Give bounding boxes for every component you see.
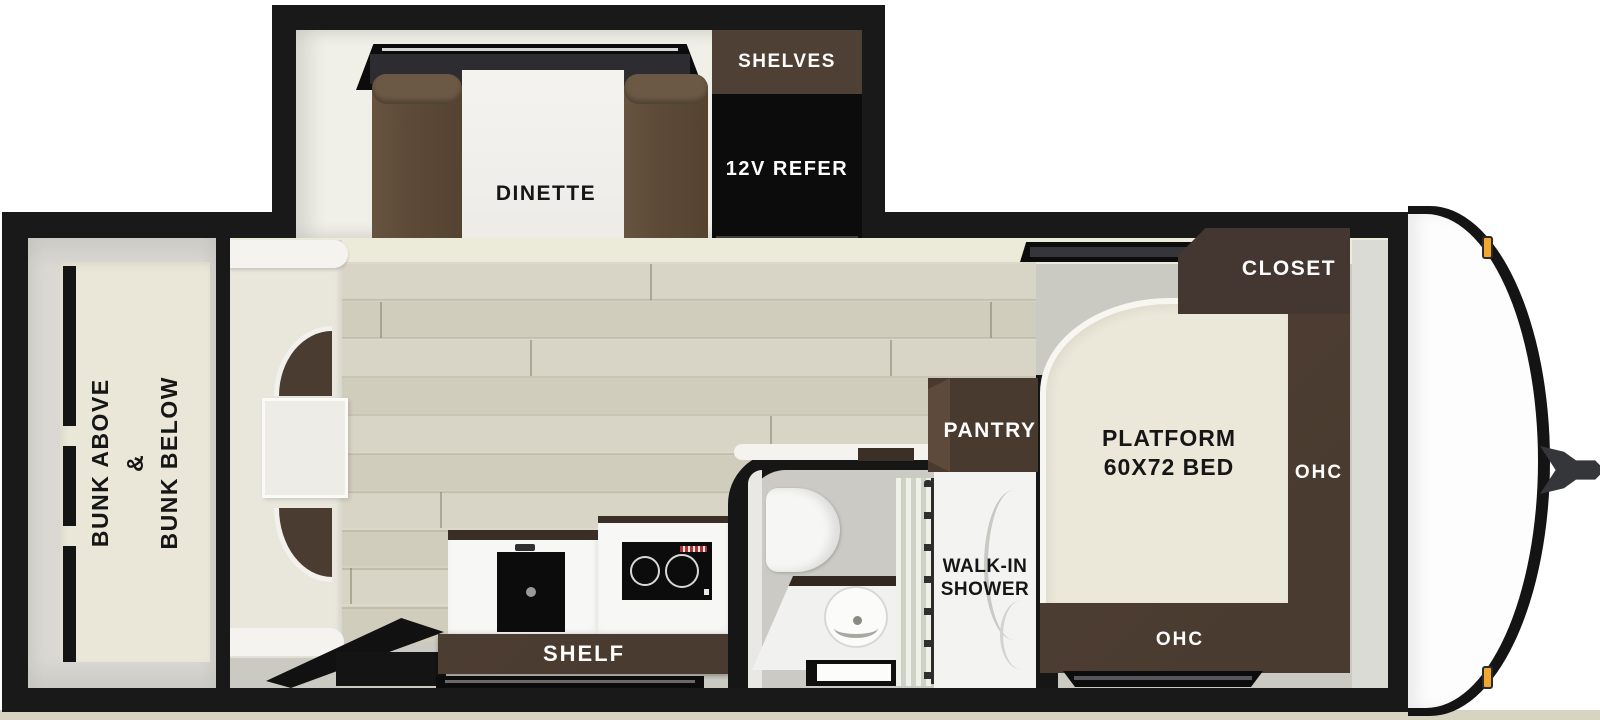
plank-seam (350, 568, 352, 604)
bed-platform: PLATFORM 60X72 BED (1040, 298, 1288, 606)
plank-seam (990, 302, 992, 338)
kitchen-sink (497, 552, 565, 632)
closet-cabinet: CLOSET (1178, 228, 1350, 314)
shower-label: WALK-IN SHOWER (936, 556, 1034, 602)
plank-seam (380, 302, 382, 338)
marker-light-top (1482, 236, 1493, 259)
curtain-rod (931, 478, 934, 684)
refer-label: 12V REFER (712, 94, 862, 244)
bathroom: WALK-IN SHOWER (748, 470, 1036, 688)
floorplan-canvas: DINETTE SHELVES 12V REFER BUNK ABOVE & B… (0, 0, 1600, 720)
pantry-label: PANTRY (942, 416, 1038, 446)
dinette-armrest-left (372, 74, 462, 104)
tv-shelf (262, 398, 348, 498)
shower-label-line2: SHOWER (941, 579, 1030, 602)
bath-mat-center (817, 664, 891, 681)
faucet (515, 544, 535, 551)
plank-seam (890, 340, 892, 376)
burner (665, 554, 699, 588)
bed-label-line1: PLATFORM (1102, 424, 1236, 453)
bed-label-line2: 60X72 BED (1104, 453, 1234, 482)
vanity-sink (824, 586, 888, 648)
bunk-label-line1: BUNK ABOVE (83, 376, 118, 549)
vanity-back-edge (752, 576, 916, 586)
main-room: SHELF WAL (230, 238, 1388, 688)
refrigerator: 12V REFER (712, 94, 862, 244)
entry-step (336, 652, 446, 686)
shelf-label: SHELF (438, 634, 730, 674)
shower-pan-curve (1000, 600, 1044, 670)
plank-seam (650, 264, 652, 300)
bunk-label-line3: BUNK BELOW (152, 376, 187, 549)
counter-back-edge (448, 530, 598, 540)
rear-bottom-trim (230, 628, 344, 656)
front-interior-wall-face (1352, 240, 1388, 688)
slideout-room: DINETTE SHELVES 12V REFER (296, 30, 862, 238)
counter-back-edge (598, 516, 730, 523)
kitchen-window-line (445, 680, 695, 683)
front-cap (1408, 206, 1600, 718)
kitchen-window (436, 676, 704, 688)
bath-mat (806, 660, 902, 686)
sink-shadow (834, 618, 878, 638)
ohc-side-label: OHC (1288, 460, 1350, 486)
rear-top-trim (230, 240, 348, 268)
sink-drain (526, 587, 536, 597)
shelves-label: SHELVES (712, 42, 862, 82)
marker-light-bottom (1482, 666, 1493, 689)
bathroom-wall-shelf (858, 448, 914, 461)
kitchen-shelf: SHELF (438, 634, 730, 674)
shower-label-line1: WALK-IN (943, 556, 1028, 579)
shower-area: WALK-IN SHOWER (934, 470, 1036, 688)
dinette-armrest-right (624, 74, 708, 104)
cooktop-mark (704, 589, 709, 595)
bunk-label-line2: & (118, 376, 153, 549)
plank-seam (440, 492, 442, 528)
closet-label: CLOSET (1236, 256, 1342, 282)
dinette-window-highlight (382, 48, 678, 51)
burner (630, 556, 660, 586)
cooktop-controls (680, 546, 707, 552)
bedroom-window-front (1063, 671, 1263, 687)
cooktop (622, 542, 712, 600)
bedroom-window-front-line (1074, 676, 1252, 680)
plank-seam (530, 340, 532, 376)
dinette-label: DINETTE (456, 180, 636, 208)
bed-label: PLATFORM 60X72 BED (1074, 424, 1264, 482)
bunk-label: BUNK ABOVE & BUNK BELOW (28, 238, 216, 688)
shelves-cabinet: SHELVES (712, 30, 862, 94)
bunk-room: BUNK ABOVE & BUNK BELOW (28, 238, 216, 688)
toilet (766, 488, 840, 572)
ohc-front-label: OHC (1120, 627, 1240, 653)
pantry-cabinet: PANTRY (928, 378, 1038, 472)
